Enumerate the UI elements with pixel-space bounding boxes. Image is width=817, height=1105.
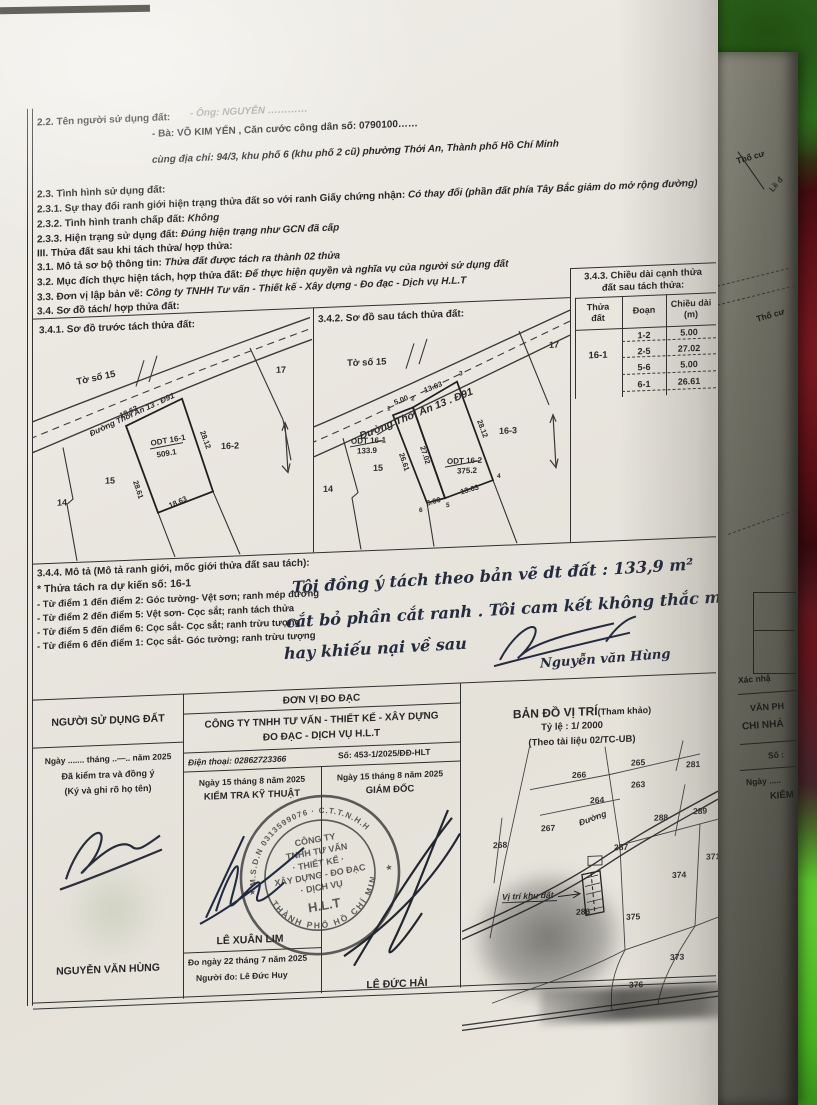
point-1: 1 (387, 405, 391, 412)
underpage-rule (740, 766, 796, 771)
road-name-label-after: Đường Thới An 13 . Đ91 (358, 386, 475, 443)
handwritten-note-line1: Tôi đồng ý tách theo bản vẽ dt đất : 133… (292, 555, 693, 597)
map-parcel-373: 373 (670, 952, 684, 963)
director-signature (330, 793, 475, 984)
sketch-before-drawing: Tờ số 15 18.63 28.12 28.61 18.63 ODT 16-… (33, 309, 313, 562)
neighbor-16-3: 16-3 (499, 425, 517, 436)
land-user-column-title: NGƯỜI SỬ DỤNG ĐẤT (33, 712, 183, 730)
neighbor-17: 17 (549, 340, 559, 350)
map-parcel-264: 264 (590, 795, 604, 806)
land-user-signature (52, 805, 167, 920)
sheet-number-label: Tờ số 15 (76, 369, 117, 388)
measurer-name: Người đo: Lê Đức Huy (196, 969, 288, 983)
table343-len: 26.61 (666, 375, 712, 387)
sketch-after-drawing: Tờ số 15 Đường Thới An 13 . Đ91 1 2 3 4 … (313, 299, 570, 551)
map-road-label: Đường (578, 808, 609, 827)
point-3: 3 (459, 370, 463, 377)
map-parcel-371: 371 (706, 851, 718, 862)
point-2: 2 (411, 395, 415, 402)
dim-1-2: 5.00 (393, 393, 410, 407)
table343-col-segment: Đoạn (623, 304, 665, 316)
land-user-sign-hint: (Ký và ghi rõ họ tên) (35, 782, 181, 798)
dim-2-5: 27.02 (418, 445, 432, 466)
underpage-label: Thổ cư (755, 306, 785, 324)
table343-col-parcel2: đất (576, 312, 620, 324)
tech-check-date: Ngày 15 tháng 8 năm 2025 (185, 773, 319, 788)
dim-bottom: 18.63 (167, 494, 188, 510)
dim-right: 28.12 (198, 429, 213, 450)
underpage-road-dash (717, 285, 795, 305)
table343-seg: 5-6 (623, 361, 665, 373)
underpage-label: Thổ cư (735, 148, 765, 166)
map-parcel-265: 265 (631, 757, 645, 768)
field-usage-status: 2.3. Tình hình sử dụng đất: (37, 184, 165, 200)
table343-col-parcel: Thửa (576, 301, 620, 313)
document-number: Số: 453-1/2025/ĐĐ-HLT (338, 747, 430, 761)
point-5: 5 (446, 502, 450, 509)
map-parcel-287: 287 (614, 842, 628, 853)
map-parcel-376: 376 (629, 979, 643, 990)
underpage-label: KIỂM (770, 789, 794, 802)
underpage-rule (738, 690, 796, 695)
neighbor-14: 14 (323, 484, 333, 494)
map-parcel-268: 268 (493, 840, 507, 851)
neighbor-15: 15 (105, 475, 115, 485)
field-boundary-change: 2.3.1. Sự thay đổi ranh giới hiện trạng … (37, 178, 697, 216)
sheet-number-label: Tờ số 15 (347, 356, 387, 369)
underpage-box (753, 592, 796, 674)
underpage-label: Ngày ..... (746, 775, 782, 787)
point-6: 6 (419, 507, 423, 514)
table343-parcel-id: 16-1 (576, 349, 620, 362)
map-frame-bottom (462, 991, 718, 1030)
table343-col-length: Chiều dài (666, 297, 716, 309)
map-parcel-374: 374 (672, 869, 686, 880)
field-land-user-wife: - Bà: VÕ KIM YẾN , Căn cước công dân số:… (152, 118, 418, 140)
underpage-label: Số : (768, 749, 785, 760)
underpage-rule (740, 740, 796, 745)
photo-root: Thổ cư Lề đ Thổ cư Xác nhậ VĂN PH CHI NH… (0, 0, 817, 1105)
field-land-user-label: 2.2. Tên người sử dụng đất: (37, 112, 170, 128)
table343-len: 5.00 (666, 326, 712, 338)
section-344-subtitle: * Thửa tách ra dự kiến số: 16-1 (37, 577, 191, 595)
parcel-16-1-area: 133.9 (357, 446, 378, 456)
sketch-after-north-mark (550, 415, 558, 468)
map-title-suffix: (Tham khảo) (598, 705, 652, 717)
sketch-before-road (33, 317, 312, 453)
map-parcel-289: 289 (693, 806, 707, 817)
location-map: 266 265 281 263 264 288 289 267 268 287 … (462, 739, 718, 1031)
neighbor-16-2: 16-2 (221, 440, 239, 451)
underpage-road-dash (707, 268, 789, 289)
land-user-rule (33, 742, 183, 749)
map-parcel-263: 263 (631, 779, 645, 790)
neighbor-14: 14 (57, 497, 67, 507)
table343-seg: 6-1 (623, 378, 665, 390)
underpage-box-line (753, 630, 795, 631)
map-parcel-281: 281 (686, 759, 700, 770)
underpage-label: VĂN PH (750, 701, 785, 713)
dim-2-3: 13.63 (423, 379, 444, 394)
tech-check-signature (192, 813, 314, 936)
table343-len: 27.02 (666, 342, 712, 354)
field-land-user-husband: - Ông: NGUYỄN ………… (190, 104, 308, 120)
document-paper: 2.2. Tên người sử dụng đất: - Ông: NGUYỄ… (0, 0, 718, 1105)
table-rule (570, 268, 571, 542)
underpage-label: Xác nhậ (738, 673, 771, 685)
map-parcel-286: 286 (576, 906, 590, 917)
land-user-name: NGUYỄN VĂN HÙNG (33, 961, 183, 979)
map-target-label: Vị trí khu đất (502, 890, 555, 902)
dim-6-5: 5.00 (425, 495, 441, 508)
parcel-area: 509.1 (156, 447, 178, 460)
neighbor-15: 15 (373, 463, 383, 473)
dim-left: 28.61 (131, 479, 145, 500)
map-title: BẢN ĐỒ VỊ TRÍ (513, 704, 598, 721)
neighbor-17: 17 (276, 365, 286, 375)
underpage-dash (728, 510, 794, 535)
map-parcel-266: 266 (572, 769, 586, 780)
underpage-label: CHI NHÁ (742, 719, 784, 733)
table343-len: 5.00 (666, 358, 712, 370)
field-land-user-address: cùng địa chỉ: 94/3, khu phố 6 (khu phố 2… (152, 139, 559, 166)
dim-1-6: 26.61 (397, 452, 411, 473)
map-parcel-375: 375 (626, 911, 640, 922)
page-border-left-outer (27, 109, 28, 1006)
underpage-label: Lề đ (767, 175, 784, 193)
point-4: 4 (497, 473, 501, 480)
land-user-agree-line: Đã kiểm tra và đồng ý (35, 767, 181, 783)
company-phone: Điện thoại: 02862723366 (188, 754, 286, 768)
parcel-16-2-area: 375.2 (457, 466, 478, 476)
land-user-date-line: Ngày ....... tháng ..—.. năm 2025 (35, 751, 181, 767)
dim-4-5: 13.63 (459, 482, 479, 496)
map-parcel-267: 267 (541, 823, 555, 834)
table343-col-length2: (m) (666, 308, 716, 320)
map-parcel-288: 288 (654, 812, 668, 823)
